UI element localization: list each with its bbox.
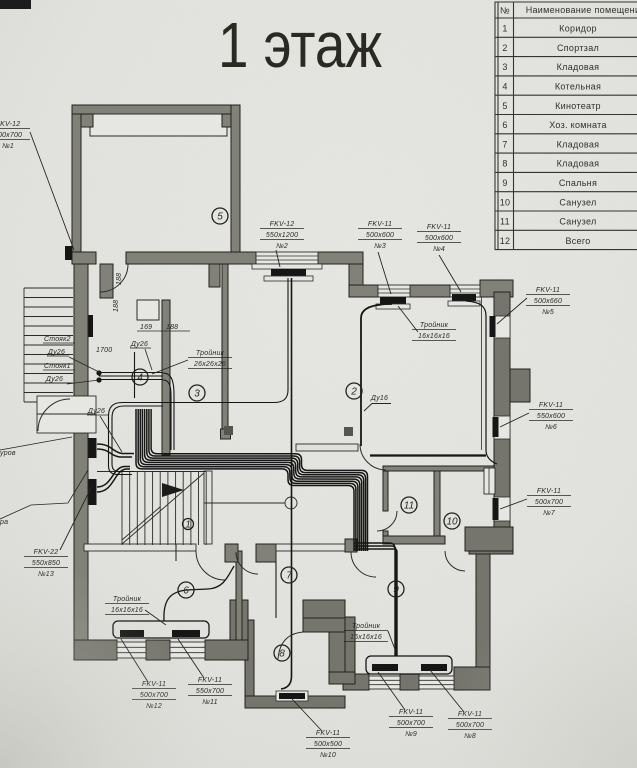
svg-text:№5: №5 bbox=[542, 309, 554, 316]
svg-text:26х26х26: 26х26х26 bbox=[193, 361, 226, 368]
svg-text:1700: 1700 bbox=[96, 347, 112, 354]
svg-text:Стояк1: Стояк1 bbox=[44, 363, 71, 370]
svg-text:188: 188 bbox=[166, 324, 178, 331]
svg-text:Санузел: Санузел bbox=[559, 197, 596, 207]
svg-text:10: 10 bbox=[500, 197, 511, 207]
svg-text:12: 12 bbox=[500, 236, 511, 246]
svg-text:1: 1 bbox=[502, 24, 507, 34]
svg-text:188: 188 bbox=[116, 273, 123, 285]
svg-text:550x1200: 550x1200 bbox=[266, 232, 298, 239]
svg-text:11: 11 bbox=[500, 217, 510, 227]
svg-text:7: 7 bbox=[502, 139, 507, 149]
svg-text:FKV-11: FKV-11 bbox=[368, 221, 392, 228]
svg-text:№: № bbox=[500, 6, 510, 16]
svg-text:№1: №1 bbox=[2, 143, 14, 150]
svg-text:500x600: 500x600 bbox=[425, 235, 453, 242]
svg-text:8: 8 bbox=[502, 159, 507, 169]
svg-text:Стояк2: Стояк2 bbox=[44, 336, 71, 343]
svg-text:500x700: 500x700 bbox=[0, 132, 22, 139]
svg-text:Хоз. комната: Хоз. комната bbox=[549, 120, 607, 130]
svg-text:9: 9 bbox=[502, 178, 507, 188]
svg-text:FKV-11: FKV-11 bbox=[427, 224, 451, 231]
svg-text:Тройник: Тройник bbox=[420, 321, 449, 329]
svg-text:4: 4 bbox=[502, 82, 507, 92]
svg-text:Кинотеатр: Кинотеатр bbox=[555, 101, 601, 111]
svg-text:5: 5 bbox=[217, 211, 223, 222]
svg-text:5: 5 bbox=[502, 101, 507, 111]
svg-text:188: 188 bbox=[113, 300, 120, 312]
svg-text:169: 169 bbox=[140, 324, 152, 331]
svg-text:Спортзал: Спортзал bbox=[557, 43, 599, 53]
svg-text:Ду26: Ду26 bbox=[130, 341, 148, 348]
svg-text:16х16х16: 16х16х16 bbox=[418, 333, 450, 340]
svg-text:Всего: Всего bbox=[565, 236, 590, 246]
svg-text:6: 6 bbox=[502, 120, 507, 130]
svg-text:Коридор: Коридор bbox=[559, 24, 597, 34]
svg-text:Кладовая: Кладовая bbox=[557, 159, 600, 169]
svg-text:Кладовая: Кладовая bbox=[557, 62, 600, 72]
svg-text:Тройник: Тройник bbox=[196, 349, 225, 357]
svg-text:№2: №2 bbox=[276, 243, 288, 250]
svg-text:Ду26: Ду26 bbox=[47, 349, 65, 356]
svg-text:Котельная: Котельная bbox=[555, 82, 601, 92]
svg-text:FKV-12: FKV-12 bbox=[270, 221, 295, 228]
svg-text:500x600: 500x600 bbox=[366, 232, 394, 239]
svg-text:Наименование помещени: Наименование помещени bbox=[526, 5, 637, 15]
svg-text:FKV-12: FKV-12 bbox=[0, 121, 20, 128]
svg-text:FKV-11: FKV-11 bbox=[536, 287, 560, 294]
svg-text:3: 3 bbox=[502, 62, 507, 72]
svg-text:1 этаж: 1 этаж bbox=[218, 9, 382, 81]
svg-text:Санузел: Санузел bbox=[559, 217, 596, 227]
svg-text:Кладовая: Кладовая bbox=[557, 139, 600, 149]
svg-text:500x660: 500x660 bbox=[534, 298, 562, 305]
svg-text:№3: №3 bbox=[374, 243, 386, 250]
svg-text:№4: №4 bbox=[433, 246, 445, 253]
svg-text:2: 2 bbox=[502, 43, 507, 53]
svg-text:Спальня: Спальня bbox=[559, 178, 597, 188]
